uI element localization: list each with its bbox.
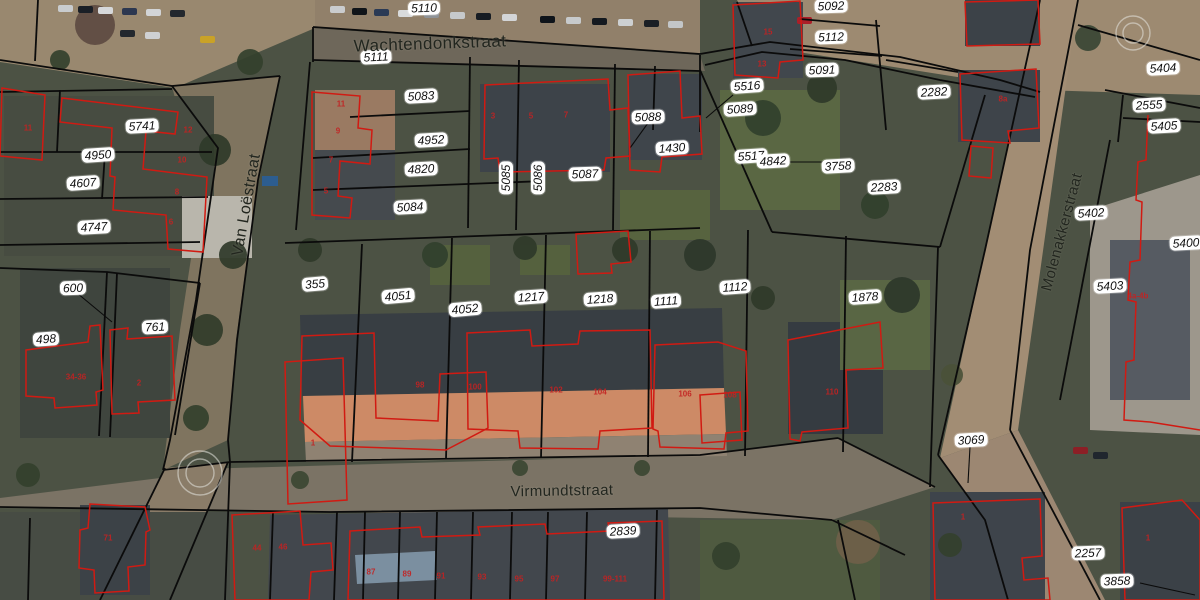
tree [938,533,962,557]
parked-car [1093,452,1108,459]
parked-car [644,20,659,27]
tree [237,49,263,75]
tree [861,191,889,219]
terrain-patch [303,388,726,442]
terrain-patch [733,2,803,78]
tree [16,463,40,487]
tree [745,100,781,136]
tree [219,241,247,269]
aerial-imagery-layer [0,0,1200,600]
parked-car [170,10,185,17]
terrain-patch [720,90,840,210]
tree [712,542,740,570]
parked-car [98,7,113,14]
parked-car [58,5,73,12]
parked-car [502,14,517,21]
tree [807,73,837,103]
parked-car [566,17,581,24]
parked-car [540,16,555,23]
tree [513,236,537,260]
parked-car [668,21,683,28]
terrain-patch [355,551,437,584]
parked-car [1073,447,1088,454]
map-canvas[interactable]: 5110511150834952482050845085508650875088… [0,0,1200,600]
parked-car [374,9,389,16]
terrain-patch [315,90,395,150]
terrain-patch [1120,502,1200,600]
parked-car [352,8,367,15]
tree [634,460,650,476]
terrain-patch [268,508,670,600]
tree [684,239,716,271]
tree [199,134,231,166]
parked-car [200,36,215,43]
tree [183,405,209,431]
parked-car [618,19,633,26]
tree [291,471,309,489]
parked-car [424,11,439,18]
terrain-patch [965,0,1040,46]
terrain-patch [958,70,1040,142]
terrain-patch [262,176,278,186]
parked-car [120,30,135,37]
tree [612,237,638,263]
parked-car [78,6,93,13]
tree [191,314,223,346]
parked-car [330,6,345,13]
terrain-patch [315,150,395,220]
terrain-patch [480,84,610,172]
parked-car [145,32,160,39]
tree [50,50,70,70]
tree [884,277,920,313]
terrain-patch [20,268,170,438]
tree [512,460,528,476]
tree [422,242,448,268]
terrain-patch [1110,240,1190,400]
parked-car [476,13,491,20]
terrain-patch [300,308,724,396]
parked-car [592,18,607,25]
parked-car [398,10,413,17]
parked-car [122,8,137,15]
parked-car [146,9,161,16]
tree [1075,25,1101,51]
parked-car [450,12,465,19]
terrain-patch [620,190,710,240]
tree [941,364,963,386]
tree [751,286,775,310]
